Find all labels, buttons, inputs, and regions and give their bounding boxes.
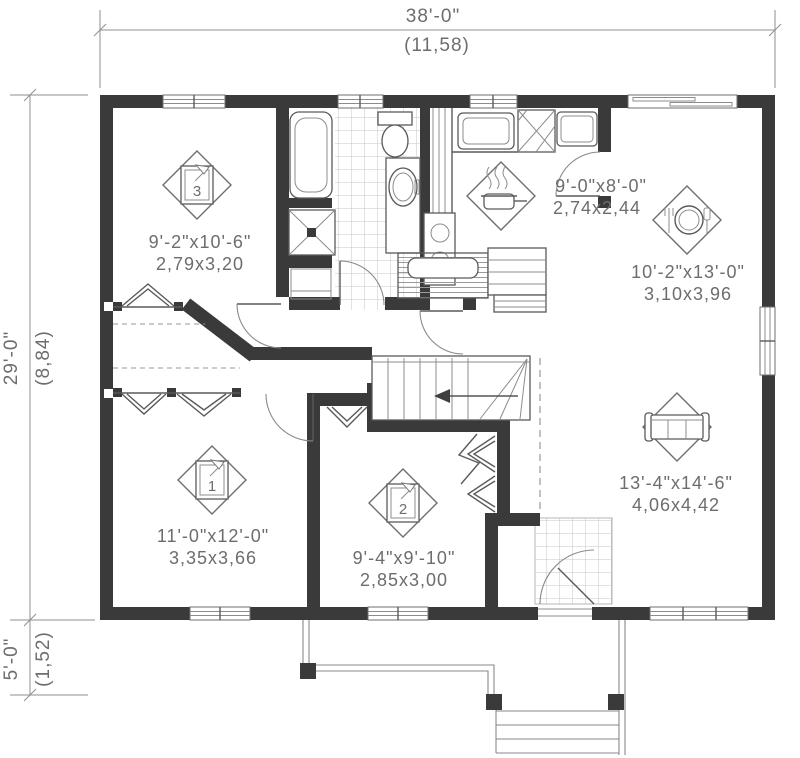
- dining-dims-imperial: 10'-2"x13'-0": [631, 262, 745, 282]
- porch-post: [608, 694, 624, 710]
- bedroom3-dims-metric: 2,79x3,20: [156, 254, 244, 274]
- front-door-threshold: [538, 609, 592, 616]
- window-bedroom1: [190, 607, 250, 620]
- porch-depth-metric: (1,52): [33, 631, 54, 687]
- porch-post: [300, 663, 316, 679]
- wall-notch: [104, 302, 113, 311]
- dining-marker: [653, 186, 721, 254]
- floor-plan-drawing: 38'-0" (11,58) 29'-0" (8,84) 5'-0" (1,52…: [0, 0, 800, 758]
- dishwasher-counter-icon: [398, 253, 488, 298]
- bifold-door-icon: [327, 407, 367, 427]
- porch-railing: [309, 620, 494, 694]
- shower-icon: [289, 210, 335, 255]
- bathtub-icon: [290, 112, 332, 198]
- bifold-door-icon: [468, 476, 495, 512]
- bedroom1-dims-metric: 3,35x3,66: [169, 548, 257, 568]
- bar-counter-icon: [488, 248, 546, 312]
- window-dining-right: [760, 307, 775, 375]
- bedroom1-marker: 1: [178, 446, 246, 514]
- living-dims-metric: 4,06x4,42: [632, 495, 720, 515]
- bedroom2-dims-imperial: 9'-4"x9'-10": [353, 548, 456, 568]
- kitchen-sink-icon: [458, 113, 514, 149]
- bedroom2-dims-metric: 2,85x3,00: [360, 570, 448, 590]
- kitchen-door: [420, 311, 463, 354]
- bifold-door-icon: [177, 394, 231, 416]
- overall-width-metric: (11,58): [404, 35, 470, 56]
- bifold-door-icon: [468, 436, 495, 472]
- living-marker: [643, 393, 711, 461]
- kitchen-dims-imperial: 9'-0"x8'-0": [555, 176, 647, 196]
- overall-height-metric: (8,84): [33, 330, 54, 386]
- bedroom1-dims-imperial: 11'-0"x12'-0": [157, 526, 269, 546]
- bedroom1-door: [266, 394, 313, 441]
- bedroom2-marker: 2: [369, 469, 437, 537]
- bed-number-icon: 3: [193, 183, 201, 200]
- entry-tile-floor: [535, 518, 612, 604]
- porch-steps: [496, 697, 619, 753]
- porch-depth-imperial: 5'-0": [1, 638, 22, 681]
- porch-post: [486, 694, 502, 710]
- overall-width-imperial: 38'-0": [406, 6, 460, 27]
- window-bedroom2: [368, 607, 428, 620]
- porch: [300, 620, 625, 755]
- dining-dims-metric: 3,10x3,96: [644, 284, 732, 304]
- wall-notch: [104, 389, 113, 398]
- dining-plate-icon: [665, 206, 710, 234]
- sliding-door-dining: [628, 95, 737, 108]
- bedroom3-dims-imperial: 9'-2"x10'-6": [149, 232, 252, 252]
- pantry-icon: [518, 110, 555, 152]
- cooking-pot-icon: [481, 167, 527, 209]
- window-bathroom: [338, 95, 383, 108]
- overall-height-imperial: 29'-0": [1, 331, 22, 385]
- bifold-door-icon: [122, 394, 166, 414]
- sofa-icon: [645, 413, 709, 441]
- porch-railing: [303, 620, 488, 694]
- floor-plan-canvas: 38'-0" (11,58) 29'-0" (8,84) 5'-0" (1,52…: [0, 0, 800, 758]
- bed-number-icon: 1: [208, 478, 216, 495]
- window-living: [650, 607, 748, 620]
- bifold-door-icon: [122, 284, 174, 306]
- vanity-sink-icon: [386, 158, 420, 253]
- window-kitchen: [470, 95, 517, 108]
- bed-number-icon: 2: [399, 501, 407, 518]
- refrigerator-icon: [557, 112, 597, 146]
- window-bedroom3: [163, 95, 225, 108]
- kitchen-marker: [467, 162, 535, 230]
- linen-closet: [291, 269, 331, 299]
- kitchen-dims-metric: 2,74x2,44: [553, 198, 641, 218]
- bedroom3-marker: 3: [163, 151, 231, 219]
- living-dims-imperial: 13'-4"x14'-6": [619, 473, 733, 493]
